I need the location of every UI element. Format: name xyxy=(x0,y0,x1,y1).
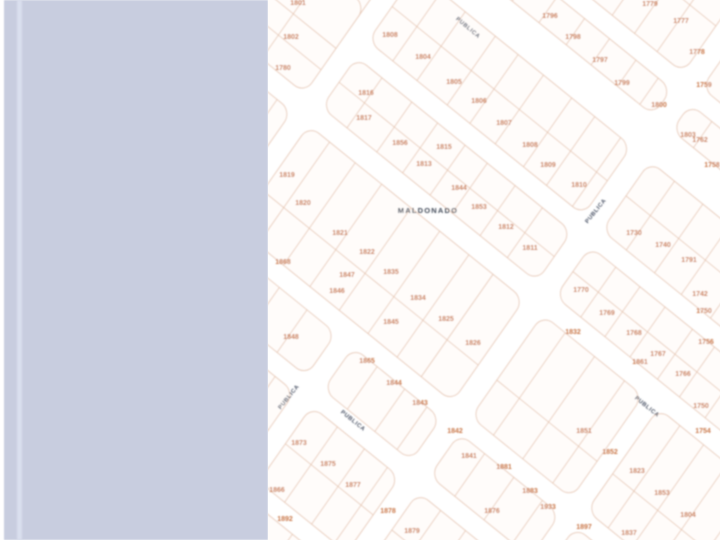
svg-text:1881: 1881 xyxy=(496,464,512,471)
svg-text:1841: 1841 xyxy=(461,453,477,460)
svg-text:1826: 1826 xyxy=(465,340,481,347)
svg-text:1799: 1799 xyxy=(614,80,630,87)
svg-text:1768: 1768 xyxy=(626,330,642,337)
svg-text:1832: 1832 xyxy=(565,329,581,336)
svg-text:1892: 1892 xyxy=(277,516,293,523)
svg-text:1844: 1844 xyxy=(451,185,467,192)
svg-text:1750: 1750 xyxy=(696,308,712,315)
svg-text:1933: 1933 xyxy=(540,504,556,511)
svg-text:1779: 1779 xyxy=(642,1,658,8)
svg-text:1822: 1822 xyxy=(359,249,375,256)
svg-text:1852: 1852 xyxy=(602,449,618,456)
svg-text:1848: 1848 xyxy=(283,334,299,341)
svg-text:1878: 1878 xyxy=(380,508,396,515)
svg-text:1750: 1750 xyxy=(693,403,709,410)
svg-text:1847: 1847 xyxy=(339,272,355,279)
svg-text:1754: 1754 xyxy=(695,428,711,435)
svg-text:1879: 1879 xyxy=(404,528,420,535)
svg-text:1770: 1770 xyxy=(573,287,589,294)
svg-text:1815: 1815 xyxy=(436,144,452,151)
svg-text:1801: 1801 xyxy=(290,0,306,7)
svg-text:1883: 1883 xyxy=(522,488,538,495)
svg-text:1762: 1762 xyxy=(692,137,708,144)
svg-text:1856: 1856 xyxy=(392,140,408,147)
svg-text:1802: 1802 xyxy=(283,34,299,41)
svg-text:1810: 1810 xyxy=(571,182,587,189)
svg-text:1769: 1769 xyxy=(599,310,615,317)
svg-text:1798: 1798 xyxy=(565,34,581,41)
svg-text:1835: 1835 xyxy=(383,269,399,276)
svg-text:1816: 1816 xyxy=(358,90,374,97)
svg-text:1861: 1861 xyxy=(632,359,648,366)
svg-text:1807: 1807 xyxy=(496,120,512,127)
svg-text:1805: 1805 xyxy=(446,79,462,86)
svg-text:1842: 1842 xyxy=(447,428,463,435)
svg-text:1813: 1813 xyxy=(416,161,432,168)
svg-text:1866: 1866 xyxy=(269,487,285,494)
svg-text:1865: 1865 xyxy=(359,358,375,365)
svg-text:1808: 1808 xyxy=(382,32,398,39)
svg-text:1873: 1873 xyxy=(291,440,307,447)
svg-text:MALDONADO: MALDONADO xyxy=(398,206,458,215)
svg-text:1875: 1875 xyxy=(320,461,336,468)
svg-text:1767: 1767 xyxy=(650,351,666,358)
svg-text:1742: 1742 xyxy=(692,291,708,298)
svg-text:1834: 1834 xyxy=(410,295,426,302)
svg-text:1778: 1778 xyxy=(689,49,705,56)
svg-text:1758: 1758 xyxy=(704,162,720,169)
svg-text:1817: 1817 xyxy=(356,115,372,122)
svg-text:1846: 1846 xyxy=(329,288,345,295)
svg-text:1825: 1825 xyxy=(438,316,454,323)
svg-text:1851: 1851 xyxy=(576,428,592,435)
svg-text:1804: 1804 xyxy=(680,512,696,519)
svg-text:1806: 1806 xyxy=(471,98,487,105)
svg-text:1819: 1819 xyxy=(279,172,295,179)
svg-text:1843: 1843 xyxy=(412,400,428,407)
svg-text:1777: 1777 xyxy=(673,18,689,25)
svg-text:1796: 1796 xyxy=(542,13,558,20)
svg-text:1868: 1868 xyxy=(275,259,291,266)
svg-text:1740: 1740 xyxy=(655,242,671,249)
svg-text:1821: 1821 xyxy=(332,230,348,237)
svg-text:1853: 1853 xyxy=(654,490,670,497)
svg-text:1730: 1730 xyxy=(626,230,642,237)
svg-text:1812: 1812 xyxy=(498,224,514,231)
svg-text:1809: 1809 xyxy=(540,162,556,169)
svg-text:1804: 1804 xyxy=(415,54,431,61)
svg-text:1877: 1877 xyxy=(345,482,361,489)
svg-text:1845: 1845 xyxy=(383,319,399,326)
svg-text:1800: 1800 xyxy=(651,102,667,109)
svg-text:1766: 1766 xyxy=(675,371,691,378)
svg-text:1853: 1853 xyxy=(471,204,487,211)
svg-text:1759: 1759 xyxy=(696,82,712,89)
svg-text:1844: 1844 xyxy=(386,380,402,387)
svg-text:1780: 1780 xyxy=(275,65,291,72)
svg-text:1823: 1823 xyxy=(629,468,645,475)
svg-text:1876: 1876 xyxy=(484,508,500,515)
svg-text:1897: 1897 xyxy=(576,524,592,531)
svg-text:1791: 1791 xyxy=(681,257,697,264)
svg-text:1756: 1756 xyxy=(698,339,714,346)
svg-text:1797: 1797 xyxy=(592,57,608,64)
svg-text:1811: 1811 xyxy=(522,245,537,252)
svg-text:1820: 1820 xyxy=(295,200,311,207)
svg-text:1808: 1808 xyxy=(522,142,538,149)
svg-text:1837: 1837 xyxy=(621,530,637,537)
